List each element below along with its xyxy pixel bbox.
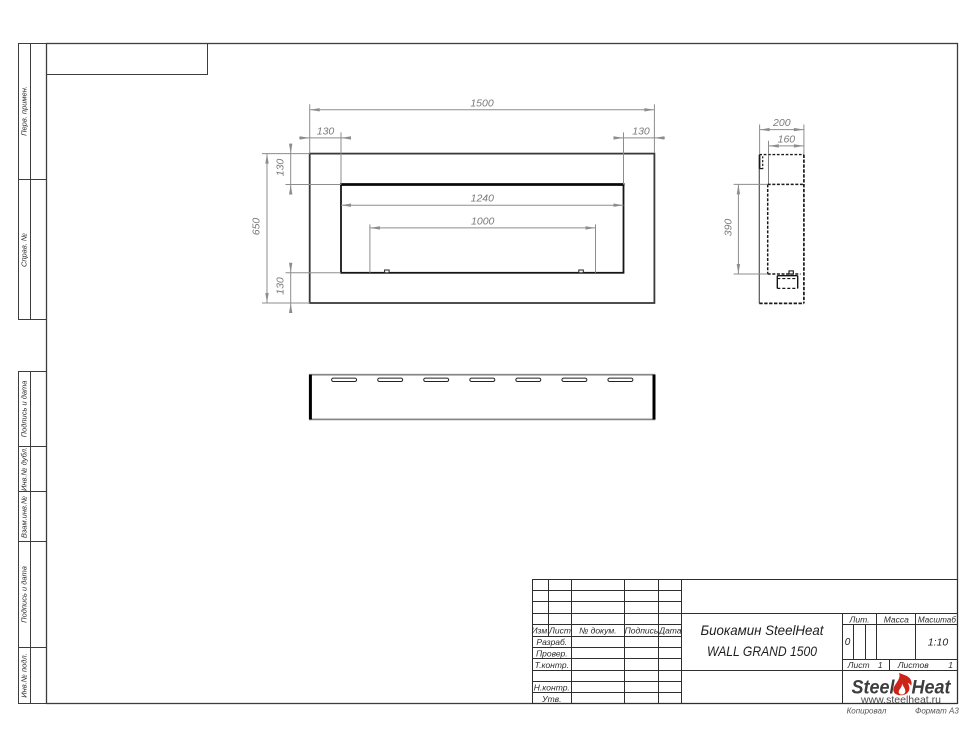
svg-text:Подпись и дата: Подпись и дата [19, 381, 28, 438]
svg-text:Инв.№ дубл.: Инв.№ дубл. [19, 447, 28, 491]
svg-text:Т.контр.: Т.контр. [535, 660, 569, 670]
svg-text:Разраб.: Разраб. [536, 637, 567, 647]
svg-text:390: 390 [723, 219, 735, 237]
svg-text:Подпись и дата: Подпись и дата [19, 566, 28, 623]
svg-text:130: 130 [317, 125, 335, 137]
svg-text:0: 0 [845, 637, 851, 648]
svg-text:Изм.: Изм. [531, 626, 549, 636]
svg-text:130: 130 [275, 159, 287, 177]
svg-text:Н.контр.: Н.контр. [534, 683, 570, 693]
svg-text:Лит.: Лит. [849, 614, 870, 624]
svg-text:Дата: Дата [658, 626, 682, 636]
svg-text:www.steelheat.ru: www.steelheat.ru [860, 694, 941, 706]
svg-text:1: 1 [948, 660, 953, 670]
svg-text:Справ. №: Справ. № [19, 233, 28, 267]
svg-text:Формат А3: Формат А3 [915, 707, 959, 716]
svg-text:Листов: Листов [897, 660, 930, 670]
svg-text:Копировал: Копировал [847, 707, 887, 716]
svg-text:650: 650 [251, 218, 263, 236]
svg-text:200: 200 [772, 117, 791, 129]
svg-text:Перв. примен.: Перв. примен. [19, 86, 28, 136]
svg-text:WALL GRAND 1500: WALL GRAND 1500 [707, 643, 817, 659]
svg-text:Утв.: Утв. [541, 694, 561, 704]
svg-text:1500: 1500 [470, 98, 494, 110]
svg-text:1240: 1240 [471, 193, 495, 205]
svg-text:№ докум.: № докум. [579, 626, 616, 636]
svg-text:160: 160 [778, 133, 796, 145]
svg-text:Масштаб: Масштаб [918, 614, 957, 624]
svg-text:130: 130 [632, 125, 650, 137]
svg-text:Лист: Лист [548, 626, 571, 636]
svg-text:1: 1 [878, 660, 883, 670]
svg-text:1:10: 1:10 [928, 637, 949, 649]
svg-text:130: 130 [275, 277, 287, 295]
svg-text:Лист: Лист [847, 660, 870, 670]
svg-text:Взам.инв.№: Взам.инв.№ [19, 496, 28, 538]
svg-text:1000: 1000 [471, 215, 495, 227]
svg-text:Масса: Масса [884, 614, 909, 624]
svg-text:Провер.: Провер. [536, 648, 568, 658]
svg-text:Подпись: Подпись [625, 626, 659, 636]
svg-text:Биокамин SteelHeat: Биокамин SteelHeat [701, 622, 825, 638]
svg-text:Инв.№ подл.: Инв.№ подл. [19, 653, 28, 697]
